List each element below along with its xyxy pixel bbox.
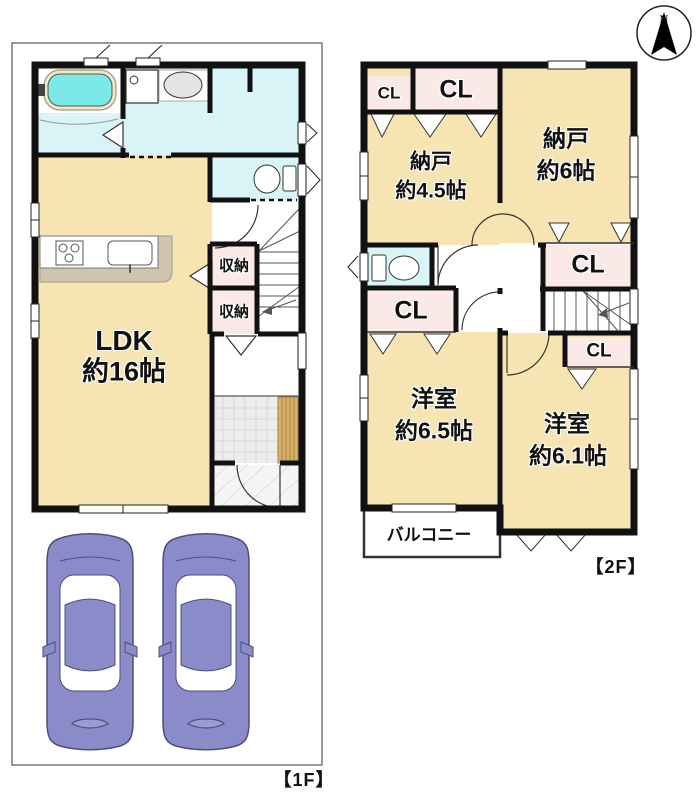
nando-small-size: 約4.5帖 <box>395 181 466 202</box>
cl-east-small-label: CL <box>586 342 611 361</box>
floorplan-page: LDK 約16帖 収納 収納 【1F】 CL CL 納戸 約4.5帖 納戸 約6… <box>0 0 697 800</box>
balcony-label: バルコニー <box>387 527 472 544</box>
toilet-2f <box>372 255 419 281</box>
car-1 <box>43 534 137 750</box>
floorplan-svg <box>0 0 697 800</box>
yoshitsu-65-size: 約6.5帖 <box>395 420 473 443</box>
floor-1f-tag: 【1F】 <box>273 771 334 789</box>
washing-machine <box>126 70 158 103</box>
cl-west-label: CL <box>394 299 427 324</box>
ldk-room-size: 約16帖 <box>82 359 166 386</box>
cl-east-label: CL <box>571 253 604 278</box>
floor-1f <box>12 43 322 765</box>
yoshitsu-65-label: 洋室 <box>411 388 457 411</box>
floor-2f-tag: 【2F】 <box>585 558 646 576</box>
nando-small-label: 納戸 <box>410 152 452 173</box>
storage-a-label: 収納 <box>219 259 249 274</box>
sink <box>108 241 152 265</box>
stairs-2f <box>554 291 631 331</box>
compass-north-label: N <box>660 13 669 25</box>
yoshitsu-61-size: 約6.1帖 <box>529 445 607 468</box>
kitchen-counter <box>40 236 172 282</box>
ldk-room-label: LDK <box>95 327 153 355</box>
wash-basin <box>159 70 209 101</box>
nando-large-label: 納戸 <box>543 128 589 151</box>
yoshitsu-61-label: 洋室 <box>544 413 590 436</box>
entry-wood-step <box>278 397 298 463</box>
stove <box>56 241 83 265</box>
storage-b-label: 収納 <box>219 305 249 320</box>
cl-top-label: CL <box>439 78 472 103</box>
toilet-door-arc <box>438 245 478 285</box>
cl-top-left-label: CL <box>378 85 401 102</box>
yoshitsu65-door-arc <box>462 292 500 330</box>
toilet-1f <box>254 165 296 193</box>
nando-large-size: 約6帖 <box>537 160 596 183</box>
car-2 <box>159 534 253 750</box>
floor-2f <box>348 61 638 557</box>
